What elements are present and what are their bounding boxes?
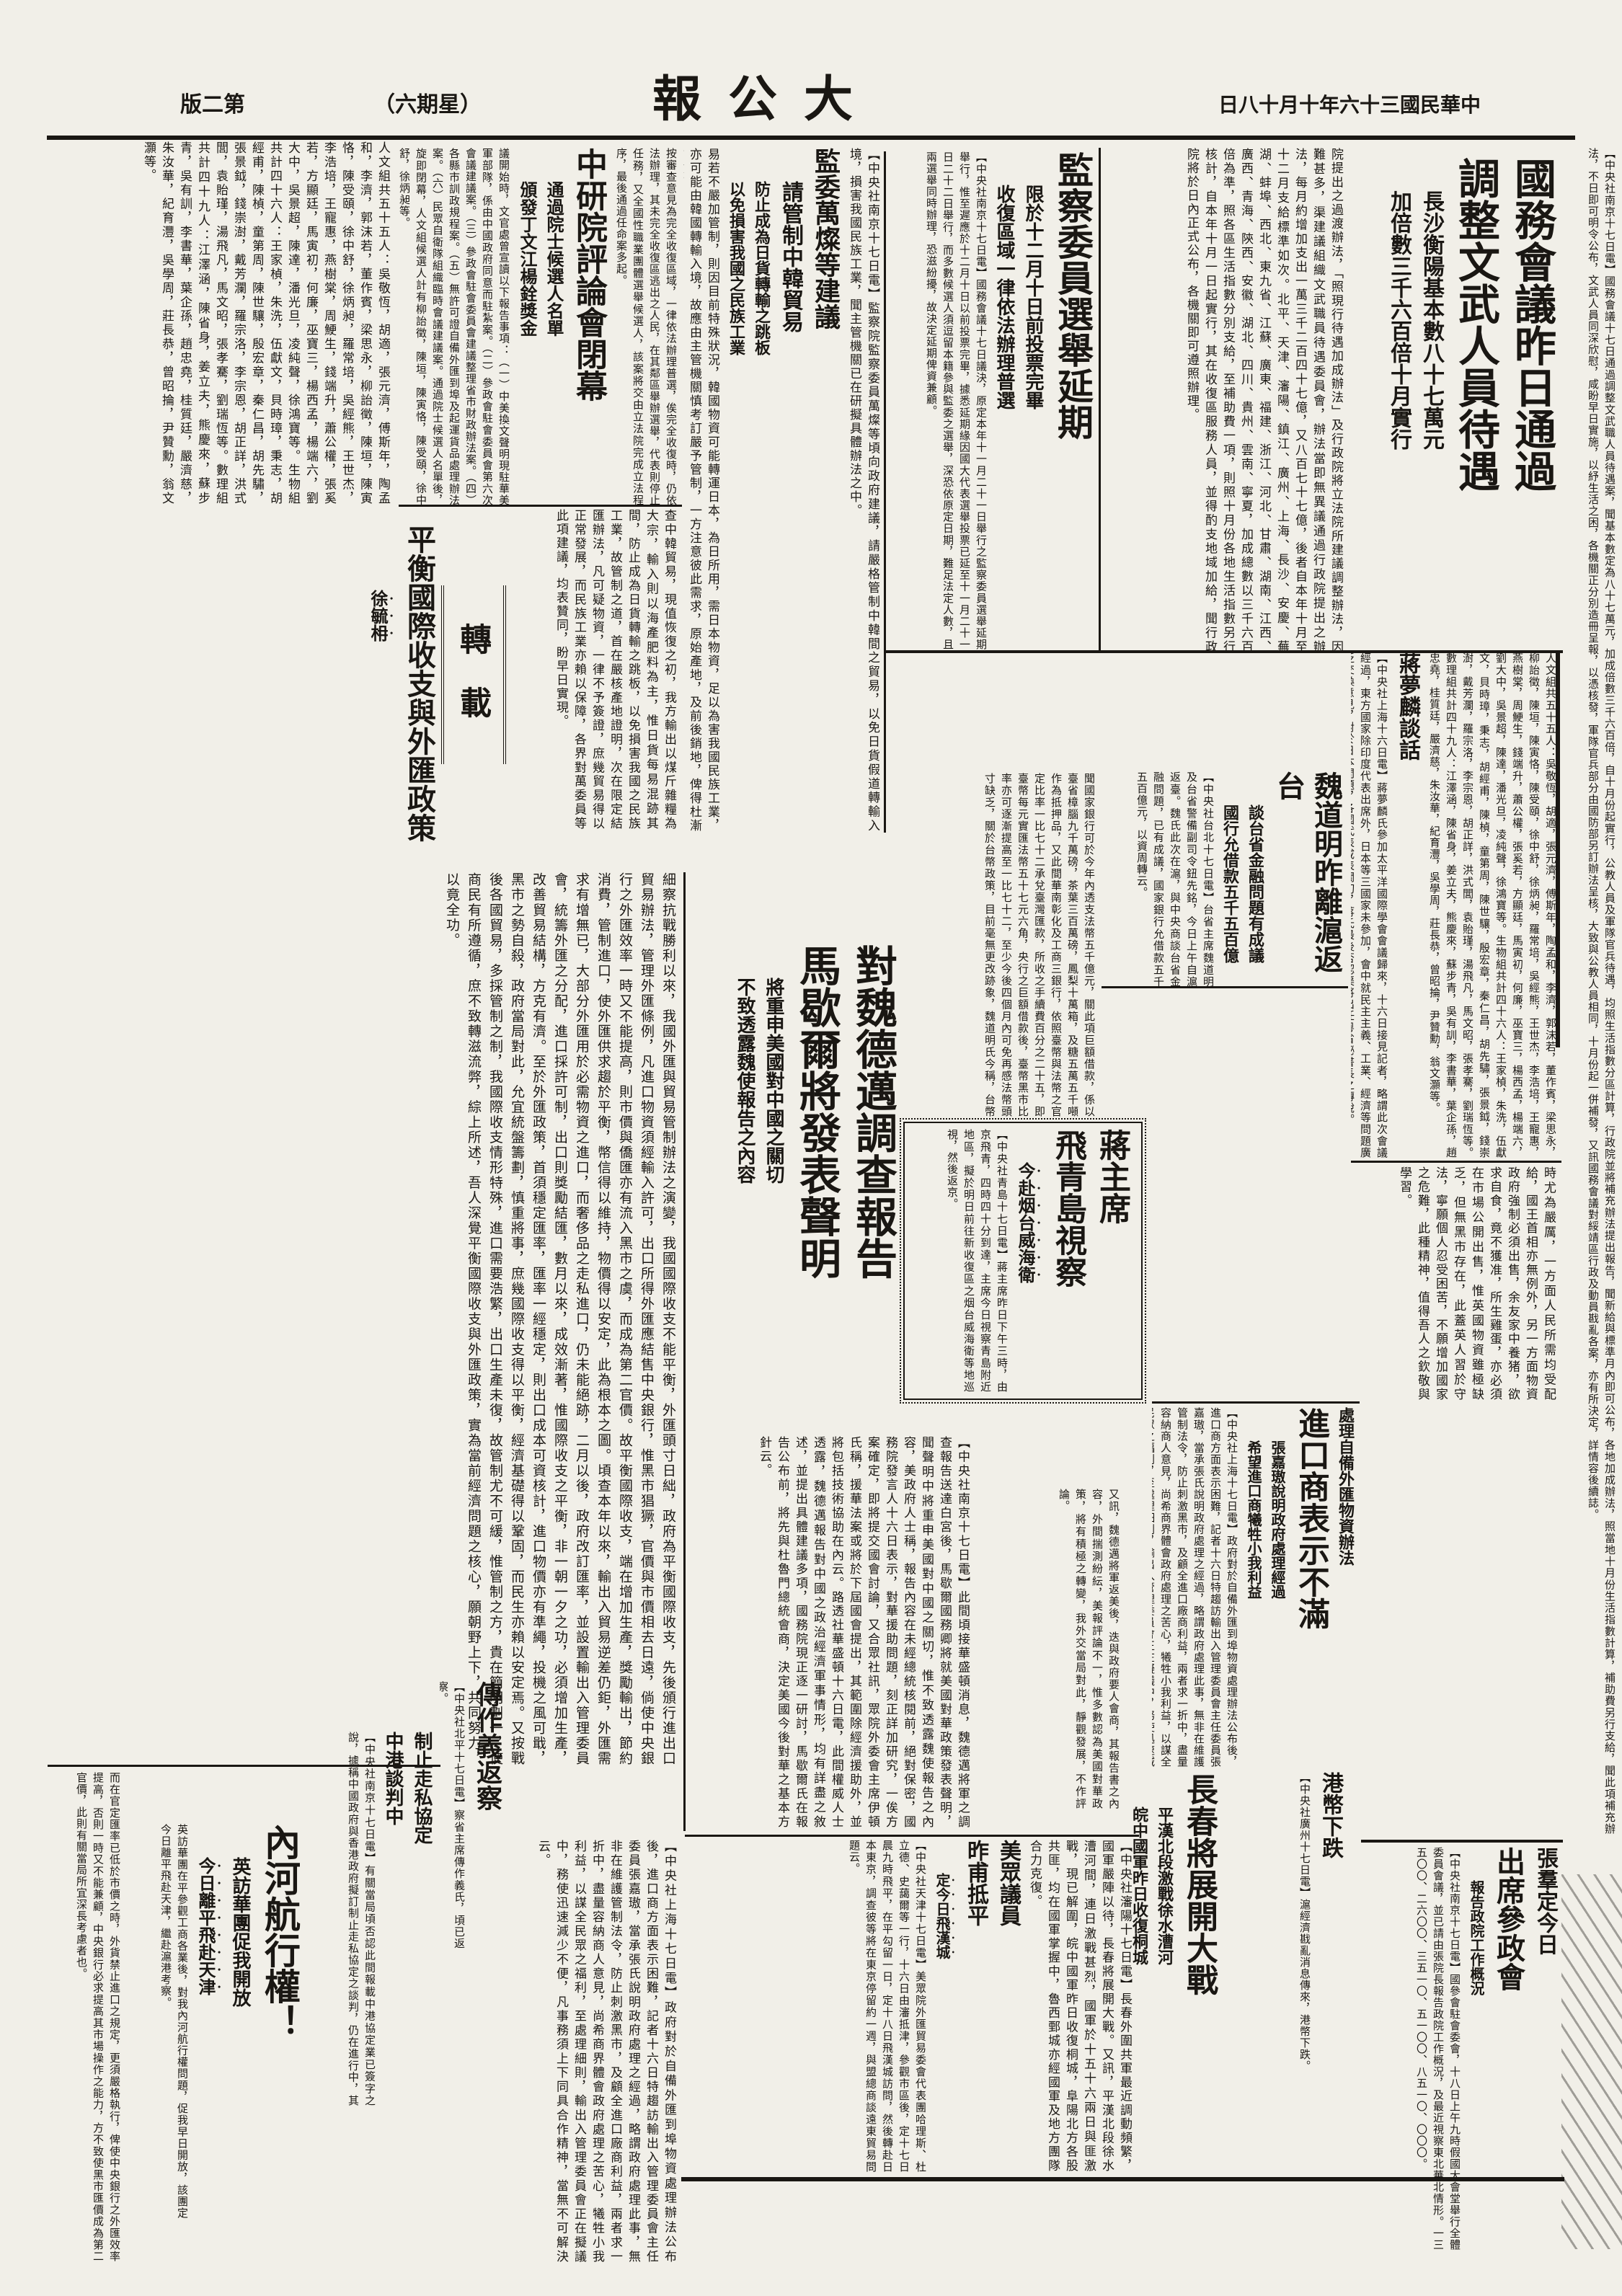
lead-body: 【中央社南京十七日電】國務會議十七日通過調整文武職人員待遇案，聞基本數定為八十七…	[1584, 148, 1617, 1835]
body-text: 時尤為嚴厲，一方面人民所需均受配給，國王首相亦無例外，另一方面物資政府強制必須出…	[1396, 1166, 1558, 1401]
article-wei-daoming: 魏道明昨離滬返台 談台省金融問題有成議 國行允借款五千五百億 【中央社台北十七日…	[1102, 771, 1348, 988]
subhead: 請管制中韓貿易	[776, 148, 805, 833]
article-wedemeyer-body: 【中央社南京十七日電】此間頃接華盛頓消息，魏德邁將軍之調查報告送達白宮後，馬歇爾…	[687, 1436, 975, 1829]
article-inland-navigation: 內河航行權！ 英訪華團促我開放 今日離平飛赴天津 英訪華團在平參觀工商各業後，對…	[127, 1824, 306, 2219]
header-rule	[47, 136, 1575, 140]
body-text: 【中央社廣州十七日電】滬經濟戡亂消息傳來，港幣下跌。	[1295, 1772, 1312, 2168]
article-taiwan-currency: 聞國家銀行可於今年內透支法幣五千億元，關此項巨額借款，係以臺省樟腦九千萬磅，茶葉…	[980, 773, 1100, 1117]
article-candidate-names: 人文組共五十五人：吳敬恆，胡適，張元濟，傅斯年，陶孟和，李濟，郭沫若，董作賓，梁…	[48, 141, 396, 505]
article-bottom-middle: 【中央社瀋陽十七日電】長春外圍共軍最近調動頻繁，國軍嚴陣以待，長春將展開大戰。又…	[685, 1840, 1138, 2173]
essay-continuation: 而在官定匯率已低於市價之時，外貨禁止進口之規定，更須嚴格執行，俾使中央銀行之外匯…	[48, 1772, 125, 2262]
body-text: 按審查意見為完全收復區域，一律依法辦理普選，俟完全收復時，仍依法辦理，其未完全收…	[612, 148, 678, 506]
article-state-council-headline: 國務會議昨日通過 調整文武人員待遇 長沙衡陽基本數八十七萬元 加倍數三千六百倍十…	[1351, 157, 1561, 655]
subhead: 張嘉璈說明政府處理經過	[1267, 1407, 1287, 1768]
body-text: 【中央社瀋陽十七日電】長春外圍共軍最近調動頻繁，國軍嚴陣以待，長春將展開大戰。又…	[1026, 1840, 1134, 2173]
section-rule	[1361, 1840, 1563, 1843]
subhead: 今日離平飛赴天津	[193, 1824, 224, 2219]
body-text: 【中央社天津十七日電】美眾院外匯貿易委會代表團哈理斯、杜立德、史藹爾等一行，十六…	[845, 1840, 928, 2173]
edition-label: 版二第	[180, 87, 245, 118]
headline: 中研院評論會閉幕	[568, 148, 608, 506]
subhead: 談台省金融問題有成議	[1244, 771, 1266, 988]
headline: 飛青島視察	[1047, 1129, 1088, 1393]
body-text: 【中央社北平十七日電】察省主席傳作義氏，頃已返察。	[440, 1681, 466, 1949]
subhead: 將重申美國對中國之關切	[761, 944, 786, 1429]
subhead: 長沙衡陽基本數八十七萬元	[1417, 157, 1445, 655]
column-rule	[683, 872, 686, 1831]
date-line: 日八十月十年六十三國民華中	[1218, 89, 1481, 118]
article-smuggling-pact: 制止走私協定 中港談判中 【中央社南京十七日電】有關當局頃否認此間報載中港協定業…	[343, 1732, 438, 2106]
headline: 對魏德邁調查報告	[846, 944, 899, 1429]
headline: 昨甫抵平	[961, 1840, 990, 2173]
section-rule	[1152, 1401, 1360, 1404]
article-academia-sinica: 按審查意見為完全收復區域，一律依法辦理普選，俟完全收復時，仍依法辦理，其未完全收…	[399, 148, 682, 506]
headline: 傳作義返察	[470, 1681, 504, 1949]
subhead: 防止成為日貨轉輸之跳板	[750, 148, 772, 833]
subhead: 今赴烟台威海衛	[1013, 1129, 1044, 1393]
headline: 蔣夢麟談話	[1393, 652, 1422, 1158]
body-text: 【中央社上海十七日電】政府對於自備外匯到埠物資處理辦法公布後，進口商方面表示困難…	[1152, 1407, 1239, 1768]
body-text: 【中央社台北十七日電】台省主席魏道明及台省警備副司令鈕先銘，今日上午自滬返臺。魏…	[1133, 771, 1215, 988]
headline: 張羣定今日	[1530, 1847, 1559, 2251]
article-wedemeyer-headline: 對魏德邁調查報告 馬歇爾將發表聲明 將重申美國對中國之關切 不致透露魏使報告之內…	[719, 944, 903, 1429]
weekday-label: （六期星）	[373, 87, 482, 118]
subhead: 頒發丁文江楊銓獎金	[515, 148, 538, 506]
headline: 內河航行權！	[257, 1824, 302, 2219]
body-text: 院提出之過渡辦法，「照現行待遇加成辦法」及行政院將立法院所建議調整辦法，因難甚多…	[1183, 148, 1345, 654]
body-text: 而在官定匯率已低於市價之時，外貨禁止進口之規定，更須嚴格執行，俾使中央銀行之外匯…	[72, 1772, 122, 2262]
headline: 出席參政會	[1489, 1847, 1527, 2251]
scan-crease-marks	[1561, 1874, 1622, 2249]
essay-title: 平衡國際收支與外匯政策	[400, 525, 438, 869]
headline: 制止走私協定	[409, 1732, 435, 2106]
body-text: 【中央社南京十七日電】國參會駐會委會，十八日上午九時假國大會堂舉行全體委員會議，…	[1412, 1847, 1462, 2251]
body-text: 又訊，魏德邁將軍返美後，迭與政府要人會商，其報告書之內容，外間揣測紛紜，美報評論…	[1055, 1489, 1121, 1809]
subhead: 收復區域一律依法辦理普選	[992, 151, 1017, 650]
body-text: 細察抗戰勝利以來，我國外匯與貿易管制辦法之演變，我國國際收支不能平衡，外匯頭寸日…	[440, 872, 678, 1766]
subhead: 英訪華團促我開放	[228, 1824, 253, 2219]
body-text: 英訪華團在平參觀工商各業後，對我內河航行權問題，促我早日開放，該團定今日離平飛赴…	[156, 1824, 190, 2219]
body-text: 【中央社上海十七日電】政府對於自備外匯到埠物資處理辦法公布後，進口商方面表示困難…	[534, 1840, 678, 2264]
body-text: 議開始時，文官處曾宣讀以下報告事項：（一）中美換文聲明現駐華美軍部隊，係由中國政…	[399, 148, 511, 506]
headline: 美眾議員	[993, 1840, 1022, 2173]
essay-author: 徐毓枏	[365, 525, 396, 869]
body-text: 【中央社南京十七日電】國務會議十七日議決，原定本年十一月二十一日舉行之監察委員選…	[922, 151, 988, 650]
headline: 魏道明昨離滬返台	[1269, 771, 1344, 988]
masthead-title: 報 公 大	[652, 69, 860, 130]
article-right-middle: 人文組共五十五人：吳敬恆，胡適，張元濟，傅斯年，陶孟和，李濟，郭沫若，董作賓，梁…	[1351, 652, 1561, 1158]
article-hk-dollar: 港幣下跌 【中央社廣州十七日電】滬經濟戡亂消息傳來，港幣下跌。	[1226, 1772, 1348, 2168]
subhead: 通過院士候選人名單	[541, 148, 564, 506]
subhead: 處理自備外匯物資辦法	[1334, 1407, 1356, 1768]
essay-body: 細察抗戰勝利以來，我國外匯與貿易管制辦法之演變，我國國際收支不能平衡，外匯頭寸日…	[48, 872, 682, 1766]
article-chuan-zuoyi: 傳作義返察 【中央社北平十七日電】察省主席傳作義氏，頃已返察。	[440, 1681, 508, 1949]
subhead: 以免損害我國之民族工業	[725, 148, 747, 833]
body-text: 【中央社上海十六日電】蔣夢麟氏參加太平洋國際學會會議歸來，十六日接見記者，略謂此…	[1351, 652, 1389, 1158]
subhead: 國行允借款五千五百億	[1219, 771, 1241, 988]
body-text: 【中央社南京十七日電】有關當局頃否認此間報載中港協定業已簽字之說，據稱中國政府與…	[343, 1732, 377, 2106]
subhead: 希望進口商犧牲小我利益	[1243, 1407, 1263, 1768]
article-bottom-fill: 【中央社上海十七日電】政府對於自備外匯到埠物資處理辦法公布後，進口商方面表示困難…	[505, 1840, 682, 2264]
reprint-label-box: 轉 載	[441, 585, 506, 764]
headline: 監察委員選舉延期	[1050, 151, 1095, 650]
article-zhang-qun: 張羣定今日 出席參政會 報告政院工作概況 【中央社南京十七日電】國參會駐會委會，…	[1361, 1847, 1563, 2251]
headline: 監委萬燦等建議	[808, 148, 842, 833]
body-text: 人文組共五十五人：吳敬恆，胡適，張元濟，傅斯年，陶孟和，李濟，郭沫若，董作賓，梁…	[140, 141, 392, 505]
section-rule	[399, 505, 682, 507]
essay-title-block: 平衡國際收支與外匯政策 徐毓枏	[301, 525, 441, 869]
section-rule	[1351, 1161, 1561, 1163]
subhead: 不致透露魏使報告之內容	[732, 944, 758, 1429]
body-text: 【中央社青島十七日電】蔣主席昨日下午三時，由京飛青，四時四十分到達，主席今日視察…	[943, 1129, 1009, 1393]
headline: 蔣主席	[1091, 1129, 1132, 1393]
article-korea-trade-continue: 查中韓貿易，現值恢復之初，我方輸出以煤斤雜糧為大宗，輸入則以海產肥料為主，惟日貨…	[505, 509, 682, 830]
subhead: 定今日飛漢城	[931, 1840, 957, 2173]
subhead: 加倍數三千六百倍十月實行	[1384, 157, 1413, 655]
newspaper-page: 版二第 （六期星） 報 公 大 日八十月十年六十三國民華中 【中央社南京十七日電…	[0, 0, 1622, 2296]
body-text: 易若不嚴加管制，則因目前特殊狀況，韓國物資可能轉運日本，為日所用，需日本物資，足…	[683, 148, 722, 833]
article-election-postponed: 監察委員選舉延期 限於十二月十日前投票完畢 收復區域一律依法辦理普選 【中央社南…	[887, 151, 1099, 650]
body-text: 人文組共五十五人：吳敬恆，胡適，張元濟，傅斯年，陶孟和，李濟，郭沫若，董作賓，梁…	[1425, 652, 1558, 1158]
article-state-council-body: 院提出之過渡辦法，「照現行待遇加成辦法」及行政院將立法院所建議調整辦法，因難甚多…	[1100, 148, 1349, 654]
headline: 進口商表示不滿	[1290, 1407, 1331, 1768]
body-text: 查中韓貿易，現值恢復之初，我方輸出以煤斤雜糧為大宗，輸入則以海產肥料為主，惟日貨…	[552, 509, 678, 830]
article-korea-trade-proposal: 【中央社南京十七日電】監察院監察委員萬燦等頃向政府建議，請嚴格管制中韓間之貿易，…	[683, 148, 885, 833]
subhead: 平漢北段激戰徐水漕河	[1153, 1773, 1175, 2278]
headline: 中港談判中	[381, 1732, 406, 2106]
headline: 調整文武人員待遇	[1449, 157, 1502, 655]
headline: 馬歇爾將發表聲明	[790, 944, 843, 1429]
bottom-rule	[681, 2177, 1564, 2181]
article-changchun-battle: 長春將展開大戰 平漢北段激戰徐水漕河 皖中國軍昨日收復桐城	[1129, 1773, 1223, 2278]
body-text: 聞國家銀行可於今年內透支法幣五千億元，關此項巨額借款，係以臺省樟腦九千萬磅，茶葉…	[980, 773, 1096, 1117]
section-rule	[1102, 986, 1348, 988]
subhead: 限於十二月十日前投票完畢	[1021, 151, 1046, 650]
headline: 國務會議昨日通過	[1505, 157, 1558, 655]
article-importers: 處理自備外匯物資辦法 進口商表示不滿 張嘉璈說明政府處理經過 希望進口商犧牲小我…	[1152, 1407, 1360, 1768]
body-text: 【中央社南京十七日電】此間頃接華盛頓消息，魏德邁將軍之調查報告送達白宮後，馬歇爾…	[755, 1436, 972, 1829]
section-rule	[685, 1835, 1139, 1837]
reprint-label: 轉 載	[452, 590, 492, 760]
subhead: 報告政院工作概況	[1466, 1847, 1486, 2251]
headline: 長春將展開大戰	[1179, 1773, 1219, 2278]
article-chiang-qingdao: 蔣主席 飛青島視察 今赴烟台威海衛 【中央社青島十七日電】蔣主席昨日下午三時，由…	[903, 1122, 1143, 1400]
column-rule	[1099, 148, 1101, 652]
article-england-rationing: 時尤為嚴厲，一方面人民所需均受配給，國王首相亦無例外，另一方面物資政府強制必須出…	[1182, 1166, 1561, 1401]
body-text: 【中央社南京十七日電】監察院監察委員萬燦等頃向政府建議，請嚴格管制中韓間之貿易，…	[846, 148, 882, 833]
article-lead-strip: 【中央社南京十七日電】國務會議十七日通過調整文武職人員待遇案，聞基本數定為八十七…	[1561, 148, 1621, 1835]
article-wedemeyer-more: 又訊，魏德邁將軍返美後，迭與政府要人會商，其報告書之內容，外間揣測紛紜，美報評論…	[980, 1489, 1125, 1809]
headline: 港幣下跌	[1316, 1772, 1344, 2168]
